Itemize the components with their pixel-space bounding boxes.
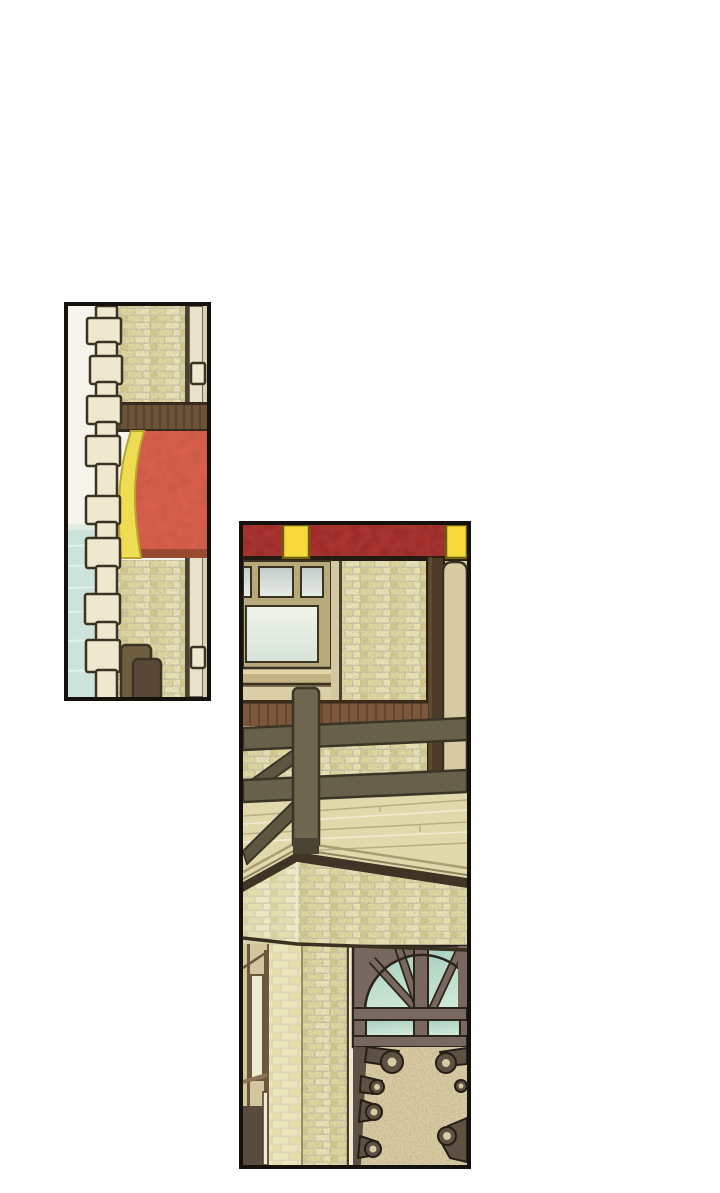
pipe-bracket-upper bbox=[191, 363, 205, 384]
awning-yellow-insert-right bbox=[446, 525, 467, 558]
door-frame-beam bbox=[427, 557, 444, 802]
panel-1-art bbox=[68, 306, 207, 697]
window-pane-top-sliver bbox=[243, 567, 251, 597]
awning-band bbox=[243, 525, 467, 561]
webtoon-page: { "page": { "kind": "webtoon comic page,… bbox=[0, 0, 720, 1193]
transom-bar bbox=[353, 1008, 467, 1020]
pipe-bracket-lower bbox=[191, 647, 205, 668]
window-pane-main bbox=[246, 606, 318, 662]
awning-red-canvas bbox=[130, 431, 207, 551]
side-window-pane bbox=[251, 975, 263, 1080]
awning-yellow-insert-left bbox=[283, 525, 309, 558]
awning-bottom-bar bbox=[138, 549, 207, 558]
window-sill bbox=[243, 668, 343, 687]
window-pane-top-right bbox=[301, 567, 323, 597]
wood-beam-band bbox=[114, 402, 207, 432]
brick-wall-upper bbox=[114, 306, 187, 403]
side-wall-perspective bbox=[243, 944, 270, 1165]
brick-wall-upper-story bbox=[342, 561, 427, 712]
comic-panel-2 bbox=[239, 521, 471, 1169]
ornate-scroll-door bbox=[353, 1047, 467, 1165]
window-pane-top-left bbox=[259, 567, 293, 597]
wooden-post-front bbox=[133, 659, 161, 697]
window-bottom-bar bbox=[353, 1036, 467, 1047]
door-panel bbox=[441, 562, 467, 804]
side-doorway bbox=[243, 1106, 264, 1165]
panel-2-art bbox=[243, 525, 467, 1165]
arched-window bbox=[353, 946, 467, 1047]
fence-post-foot bbox=[293, 838, 319, 854]
red-awning-band bbox=[243, 525, 467, 559]
transom-pane-right bbox=[428, 1020, 460, 1036]
fence-post bbox=[293, 688, 319, 848]
transom-pane-left bbox=[366, 1020, 414, 1036]
corner-brick-pillar bbox=[268, 944, 348, 1165]
pillar-shaded-face bbox=[302, 944, 348, 1165]
pillar-light-face bbox=[268, 944, 302, 1165]
comic-panel-1 bbox=[64, 302, 211, 701]
casement-window bbox=[243, 561, 331, 670]
red-awning bbox=[119, 431, 207, 558]
